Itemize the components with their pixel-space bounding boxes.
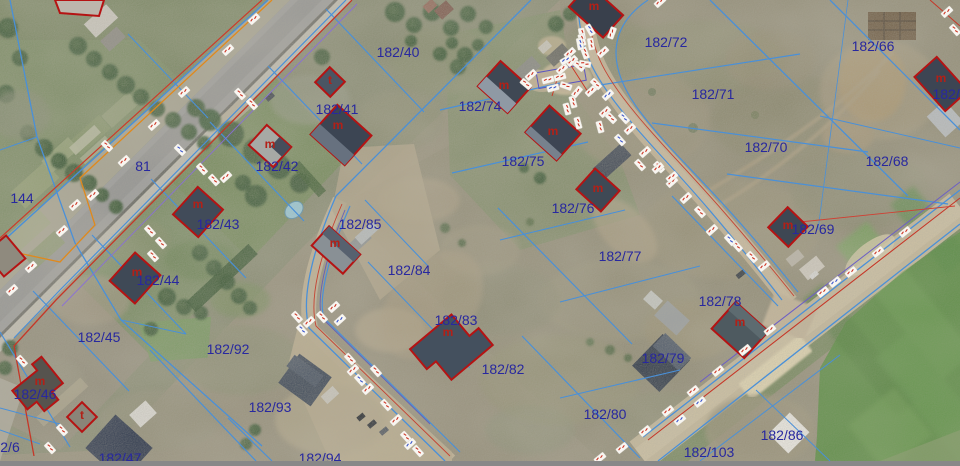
svg-text:182/6: 182/6 (932, 86, 960, 102)
svg-text:m: m (593, 181, 604, 195)
svg-text:182/44: 182/44 (137, 272, 180, 288)
svg-text:182/70: 182/70 (745, 139, 788, 155)
svg-text:182/76: 182/76 (552, 200, 595, 216)
svg-text:t: t (80, 408, 84, 422)
svg-text:182/45: 182/45 (78, 329, 121, 345)
svg-text:m: m (735, 315, 746, 329)
svg-text:182/92: 182/92 (207, 341, 250, 357)
svg-text:182/78: 182/78 (699, 293, 742, 309)
svg-text:182/69: 182/69 (792, 221, 835, 237)
svg-text:182/46: 182/46 (14, 386, 57, 402)
svg-text:m: m (193, 197, 204, 211)
svg-text:182/47: 182/47 (99, 450, 142, 461)
svg-text:182/86: 182/86 (761, 427, 804, 443)
svg-text:m: m (589, 0, 600, 13)
svg-text:m: m (499, 78, 510, 92)
svg-text:m: m (333, 118, 344, 132)
svg-text:182/40: 182/40 (377, 44, 420, 60)
svg-text:182/74: 182/74 (459, 98, 502, 114)
svg-text:t: t (328, 73, 332, 87)
svg-text:182/66: 182/66 (852, 38, 895, 54)
svg-text:144: 144 (10, 190, 34, 206)
svg-text:m: m (330, 236, 341, 250)
svg-text:182/41: 182/41 (316, 101, 359, 117)
svg-text:182/83: 182/83 (435, 312, 478, 328)
svg-text:2/6: 2/6 (0, 439, 20, 455)
svg-text:81: 81 (135, 158, 151, 174)
svg-text:182/77: 182/77 (599, 248, 642, 264)
svg-text:182/79: 182/79 (642, 350, 685, 366)
svg-text:182/93: 182/93 (249, 399, 292, 415)
svg-text:182/80: 182/80 (584, 406, 627, 422)
svg-text:182/82: 182/82 (482, 361, 525, 377)
svg-text:182/84: 182/84 (388, 262, 431, 278)
svg-text:182/94: 182/94 (299, 450, 342, 461)
svg-text:182/68: 182/68 (866, 153, 909, 169)
svg-text:m: m (265, 137, 276, 151)
svg-text:182/43: 182/43 (197, 216, 240, 232)
svg-text:182/85: 182/85 (339, 216, 382, 232)
svg-text:182/71: 182/71 (692, 86, 735, 102)
svg-text:182/72: 182/72 (645, 34, 688, 50)
svg-text:182/42: 182/42 (256, 158, 299, 174)
svg-text:182/75: 182/75 (502, 153, 545, 169)
svg-text:m: m (936, 71, 947, 85)
svg-text:182/103: 182/103 (684, 444, 735, 460)
svg-text:m: m (548, 124, 559, 138)
